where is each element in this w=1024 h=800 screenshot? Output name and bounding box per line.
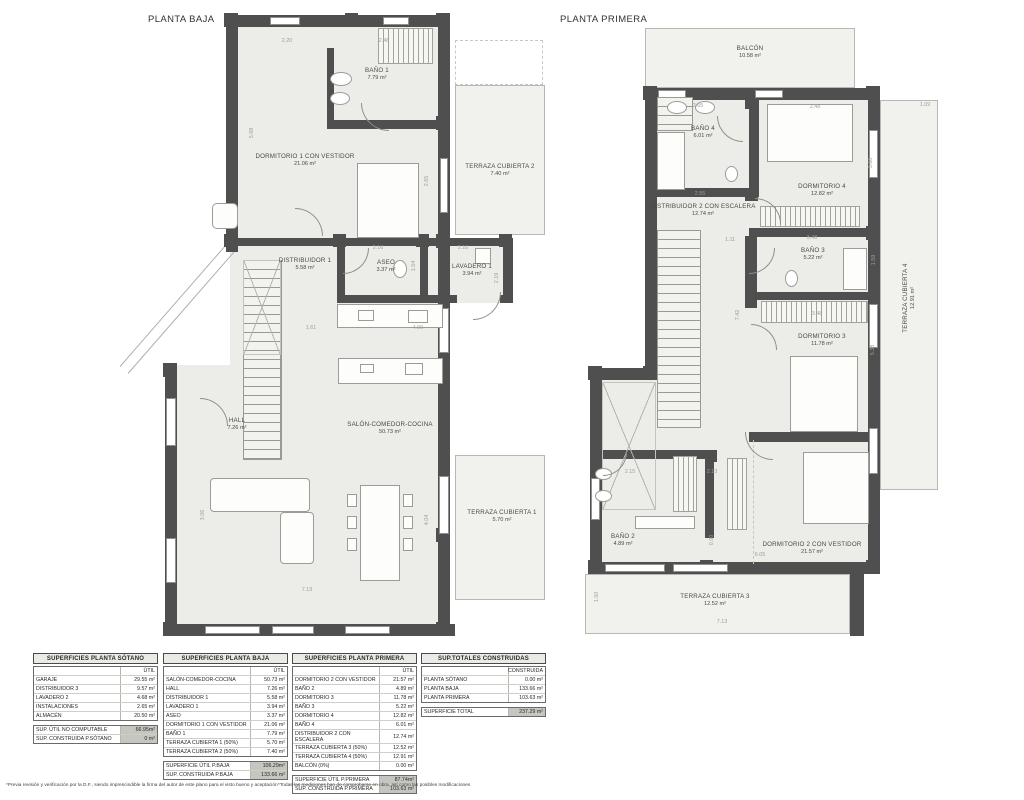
room-label-terraza2: TERRAZA CUBIERTA 2 7.40 m²: [465, 163, 534, 177]
row-label: BALCÓN (0%): [293, 762, 379, 770]
dimension-label: 1.59: [871, 255, 877, 266]
bed-icon: [767, 104, 853, 162]
room-area: 6.01 m²: [691, 133, 715, 139]
table-body: CONSTRUIDAPLANTA SÓTANO0.00 m²PLANTA BAJ…: [421, 666, 546, 703]
sink-icon: [330, 72, 352, 86]
room-area: 21.06 m²: [255, 161, 354, 167]
wall: [163, 363, 177, 377]
floor-plan-sheet: PLANTA BAJA PLANTA PRIMERA: [0, 0, 1024, 800]
total-value: 133.66 m²: [250, 771, 287, 779]
window: [605, 564, 665, 572]
room-name: LAVADERO 1: [452, 263, 492, 270]
table-row: BAÑO 46.01 m²: [293, 721, 416, 730]
footnote-left: *Previa revisión y verificación por la D…: [6, 783, 278, 788]
total-label: SUPERFICIE ÚTIL P.BAJA: [164, 762, 250, 770]
terrace-cubierta-2: [455, 85, 545, 235]
wardrobe-hatch: [378, 28, 433, 64]
dimension-label: 3.48: [812, 311, 823, 317]
room-label-dorm3: DORMITORIO 3 11.78 m²: [798, 333, 846, 347]
room-area: 5.58 m²: [279, 265, 331, 271]
window: [869, 428, 878, 474]
total-label: SUPERFICIE TOTAL: [422, 708, 508, 716]
room-label-distribuidor2: DISTRIBUIDOR 2 CON ESCALERA 12.74 m²: [650, 203, 755, 217]
room-name: BAÑO 2: [611, 533, 635, 540]
room-area: 10.58 m²: [737, 53, 764, 59]
dimension-label: 4.04: [424, 515, 430, 526]
row-label: DISTRIBUIDOR 3: [34, 685, 120, 693]
total-label: SUP. CONSTRUIDA P.BAJA: [164, 771, 250, 779]
table-total-row: SUP. ÚTIL NO COMPUTABLE66.95m²: [34, 726, 157, 735]
row-value: 12.74 m²: [379, 730, 416, 743]
toilet-icon: [785, 270, 798, 287]
window: [166, 538, 176, 583]
wall: [588, 560, 602, 574]
table-row: BAÑO 35.22 m²: [293, 703, 416, 712]
wall: [866, 226, 880, 240]
room-label-terraza1: TERRAZA CUBIERTA 1 5.70 m²: [467, 509, 536, 523]
wall: [226, 238, 513, 246]
total-label: SUP. ÚTIL NO COMPUTABLE: [34, 726, 120, 734]
wall: [224, 234, 237, 247]
table-superficies-planta-primera: SUPERFICIES PLANTA PRIMERAÚTILDORMITORIO…: [292, 653, 417, 794]
table-row: TERRAZA CUBIERTA 3 (50%)12.52 m²: [293, 744, 416, 753]
chair-icon: [347, 516, 357, 529]
room-name: SALÓN-COMEDOR-COCINA: [347, 421, 432, 428]
row-value: 5.22 m²: [379, 703, 416, 711]
cabinet-icon: [657, 132, 685, 190]
table-superficies-planta-sotano: SUPERFICIES PLANTA SÓTANOÚTILGARAJE29.55…: [33, 653, 158, 744]
table-total-row: SUP. CONSTRUIDA P.BAJA133.66 m²: [164, 771, 287, 779]
row-label: PLANTA SÓTANO: [422, 676, 508, 684]
wall: [850, 570, 864, 636]
dining-table-icon: [360, 485, 400, 581]
table-row: DORMITORIO 311.78 m²: [293, 694, 416, 703]
row-value: 103.63 m²: [508, 694, 545, 702]
wall: [643, 86, 657, 100]
dashed-line: [753, 440, 754, 564]
wall: [436, 116, 450, 130]
table-sup-totales-construidas: SUP.TOTALES CONSTRUIDASCONSTRUIDAPLANTA …: [421, 653, 546, 717]
room-name: DISTRIBUIDOR 2 CON ESCALERA: [650, 203, 755, 210]
wall: [749, 100, 759, 197]
window: [272, 626, 314, 634]
chair-icon: [347, 494, 357, 507]
table-body: ÚTILSALÓN-COMEDOR-COCINA50.73 m²HALL7.26…: [163, 666, 288, 757]
door-arc: [473, 292, 501, 320]
row-value: 5.58 m²: [250, 694, 287, 702]
row-label: DORMITORIO 1 CON VESTIDOR: [164, 721, 250, 729]
row-value: 29.55 m²: [120, 676, 157, 684]
room-area: 7.79 m²: [365, 75, 389, 81]
room-name: DORMITORIO 1 CON VESTIDOR: [255, 153, 354, 160]
hob-icon: [405, 363, 423, 375]
wall: [866, 86, 880, 100]
table-row: DORMITORIO 2 CON VESTIDOR21.57 m²: [293, 676, 416, 685]
table-row: SALÓN-COMEDOR-COCINA50.73 m²: [164, 676, 287, 685]
table-row: BAÑO 24.89 m²: [293, 685, 416, 694]
dimension-label: 7.13: [717, 619, 728, 625]
dimension-label: 2.65: [693, 103, 704, 109]
dimension-label: 5.38: [870, 345, 876, 356]
room-name: ASEO: [377, 259, 396, 266]
table-total-row: SUP. CONSTRUIDA P.SÓTANO0 m²: [34, 735, 157, 743]
row-label: DISTRIBUIDOR 1: [164, 694, 250, 702]
row-value: 133.66 m²: [508, 685, 545, 693]
room-area: 12.91 m²: [910, 263, 916, 332]
row-label: GARAJE: [34, 676, 120, 684]
row-value: 0.00 m²: [379, 762, 416, 770]
table-row: DORMITORIO 412.82 m²: [293, 712, 416, 721]
wall: [705, 450, 717, 462]
dimension-label: 3.68: [868, 158, 874, 169]
row-label: TERRAZA CUBIERTA 2 (50%): [164, 748, 250, 756]
double-height-void: [602, 382, 656, 510]
row-label: PLANTA PRIMERA: [422, 694, 508, 702]
room-area: 21.57 m²: [762, 549, 861, 555]
wall: [438, 15, 450, 122]
bed-icon: [803, 452, 869, 524]
wall: [499, 234, 512, 247]
dimension-label: 2.16: [458, 245, 469, 251]
wall: [436, 622, 450, 636]
row-value: 0.00 m²: [508, 676, 545, 684]
plan-planta-primera: BALCÓN 10.58 m² BAÑO 4 6.01 m² DORMITORI…: [555, 8, 955, 653]
boundary-line: [120, 240, 231, 367]
row-value: 7.79 m²: [250, 730, 287, 738]
table-superficies-planta-baja: SUPERFICIES PLANTA BAJAÚTILSALÓN-COMEDOR…: [163, 653, 288, 780]
table-title: SUPERFICIES PLANTA SÓTANO: [33, 653, 158, 664]
dimension-label: 1.50: [594, 592, 600, 603]
table-column-header: CONSTRUIDA: [508, 667, 545, 675]
room-label-dorm1: DORMITORIO 1 CON VESTIDOR 21.06 m²: [255, 153, 354, 167]
room-label-bano2: BAÑO 2 4.89 m²: [611, 533, 635, 547]
table-row: PLANTA SÓTANO0.00 m²: [422, 676, 545, 685]
table-header-row: ÚTIL: [164, 667, 287, 676]
row-label: PLANTA BAJA: [422, 685, 508, 693]
dimension-label: 2.20: [282, 38, 293, 44]
dimension-label: 7.13: [302, 587, 313, 593]
room-area: 5.70 m²: [467, 517, 536, 523]
chair-icon: [403, 516, 413, 529]
row-value: 2.65 m²: [120, 703, 157, 711]
row-label: INSTALACIONES: [34, 703, 120, 711]
wall: [588, 366, 602, 380]
row-label: TERRAZA CUBIERTA 4 (50%): [293, 753, 379, 761]
row-label: [164, 667, 250, 675]
row-label: ASEO: [164, 712, 250, 720]
row-value: 3.94 m²: [250, 703, 287, 711]
room-area: 5.22 m²: [801, 255, 825, 261]
table-row: DISTRIBUIDOR 15.58 m²: [164, 694, 287, 703]
table-total-row: SUPERFICIE ÚTIL P.BAJA106.29m²: [164, 762, 287, 771]
wall: [345, 13, 358, 26]
window: [869, 130, 878, 178]
dashed-line: [455, 40, 543, 85]
room-name: DORMITORIO 4: [798, 183, 846, 190]
window: [205, 626, 260, 634]
table-row: DORMITORIO 1 CON VESTIDOR21.06 m²: [164, 721, 287, 730]
table-header-row: CONSTRUIDA: [422, 667, 545, 676]
footnote-right: *Todas las mediciones han de comprobarse…: [278, 783, 470, 788]
dimension-label: 1.61: [306, 325, 317, 331]
row-value: 7.26 m²: [250, 685, 287, 693]
washer-icon: [475, 248, 491, 264]
dimension-label: 7.42: [735, 310, 741, 321]
room-name: BALCÓN: [737, 45, 764, 52]
dimension-label: 4.90: [413, 325, 424, 331]
dimension-label: 1.09: [920, 102, 931, 108]
table-row: DISTRIBUIDOR 2 CON ESCALERA12.74 m²: [293, 730, 416, 744]
room-area: 12.52 m²: [680, 601, 749, 607]
row-value: 21.57 m²: [379, 676, 416, 684]
room-label-terraza4: TERRAZA CUBIERTA 4 12.91 m²: [902, 263, 916, 332]
sink-icon: [330, 92, 350, 105]
dimension-label: 2.19: [494, 273, 500, 284]
table-row: PLANTA BAJA133.66 m²: [422, 685, 545, 694]
divider-line: [281, 260, 282, 460]
wall: [333, 234, 346, 247]
bed-icon: [357, 163, 419, 238]
room-area: 4.89 m²: [611, 541, 635, 547]
total-value: 106.29m²: [250, 762, 287, 770]
chair-icon: [403, 494, 413, 507]
dimension-label: 2.46: [379, 38, 390, 44]
dimension-label: 2.48: [810, 104, 821, 110]
row-label: DORMITORIO 2 CON VESTIDOR: [293, 676, 379, 684]
room-area: 7.26 m²: [228, 425, 247, 431]
window: [345, 626, 390, 634]
room-label-aseo: ASEO 3.37 m²: [377, 259, 396, 273]
row-value: 12.91 m²: [379, 753, 416, 761]
table-row: LAVADERO 13.94 m²: [164, 703, 287, 712]
sink-icon: [358, 310, 374, 321]
room-label-hall: HALL 7.26 m²: [228, 417, 247, 431]
window: [270, 17, 300, 25]
wall: [436, 13, 450, 27]
boundary-line: [128, 247, 239, 374]
table-row: ALMACÉN20.50 m²: [34, 712, 157, 720]
table-row: PLANTA PRIMERA103.63 m²: [422, 694, 545, 702]
wall: [224, 13, 238, 27]
bed-icon: [790, 356, 858, 432]
row-label: ALMACÉN: [34, 712, 120, 720]
room-name: HALL: [228, 417, 247, 424]
room-label-balcon: BALCÓN 10.58 m²: [737, 45, 764, 59]
table-totals: SUPERFICIE ÚTIL P.BAJA106.29m²SUP. CONST…: [163, 761, 288, 780]
row-label: [34, 667, 120, 675]
table-row: BALCÓN (0%)0.00 m²: [293, 762, 416, 770]
table-title: SUPERFICIES PLANTA BAJA: [163, 653, 288, 664]
row-label: BAÑO 2: [293, 685, 379, 693]
room-label-bano1: BAÑO 1 7.79 m²: [365, 67, 389, 81]
room-name: TERRAZA CUBIERTA 2: [465, 163, 534, 170]
room-name: DORMITORIO 2 CON VESTIDOR: [762, 541, 861, 548]
table-row: HALL7.26 m²: [164, 685, 287, 694]
table-header-row: ÚTIL: [293, 667, 416, 676]
room-area: 50.73 m²: [347, 429, 432, 435]
dimension-label: 2.55: [695, 191, 706, 197]
row-label: DORMITORIO 4: [293, 712, 379, 720]
table-row: TERRAZA CUBIERTA 1 (50%)5.70 m²: [164, 739, 287, 748]
wardrobe-hatch: [727, 458, 747, 530]
table-column-header: ÚTIL: [379, 667, 416, 675]
sink-icon: [667, 101, 687, 114]
room-label-terraza3: TERRAZA CUBIERTA 3 12.52 m²: [680, 593, 749, 607]
wall: [226, 15, 445, 27]
dimension-label: 1.11: [725, 237, 735, 243]
dimension-label: 2.13: [707, 469, 718, 475]
row-value: 4.89 m²: [379, 685, 416, 693]
room-area: 3.94 m²: [452, 271, 492, 277]
table-column-header: ÚTIL: [250, 667, 287, 675]
toilet-icon: [725, 166, 738, 182]
sink-icon: [595, 490, 612, 502]
room-label-dorm2: DORMITORIO 2 CON VESTIDOR 21.57 m²: [762, 541, 861, 555]
window: [869, 304, 878, 348]
sink-icon: [360, 364, 374, 373]
row-label: DISTRIBUIDOR 2 CON ESCALERA: [293, 730, 379, 743]
dimension-label: 3.06: [200, 510, 206, 521]
dimension-label: 2.65: [424, 176, 430, 187]
table-column-header: ÚTIL: [120, 667, 157, 675]
row-label: [422, 667, 508, 675]
stove-icon: [408, 310, 428, 323]
dimension-label: 1.54: [411, 261, 417, 272]
room-area: 12.82 m²: [798, 191, 846, 197]
staircase: [657, 230, 701, 428]
table-row: ASEO3.37 m²: [164, 712, 287, 721]
table-totals: SUP. ÚTIL NO COMPUTABLE66.95m²SUP. CONST…: [33, 725, 158, 744]
room-label-distribuidor1: DISTRIBUIDOR 1 5.58 m²: [279, 257, 331, 271]
table-totals: SUPERFICIE TOTAL237.29 m²: [421, 707, 546, 717]
total-value: 237.29 m²: [508, 708, 545, 716]
wall: [436, 234, 450, 248]
dimension-label: 0.90: [709, 535, 715, 546]
room-label-bano4: BAÑO 4 6.01 m²: [691, 125, 715, 139]
row-label: TERRAZA CUBIERTA 1 (50%): [164, 739, 250, 747]
table-title: SUP.TOTALES CONSTRUIDAS: [421, 653, 546, 664]
sofa-icon: [280, 512, 314, 564]
window: [383, 17, 409, 25]
room-label-lavadero1: LAVADERO 1 3.94 m²: [452, 263, 492, 277]
total-value: 66.95m²: [120, 726, 157, 734]
table-row: TERRAZA CUBIERTA 4 (50%)12.91 m²: [293, 753, 416, 762]
kitchen-island: [338, 358, 443, 384]
wall: [705, 453, 714, 538]
bathtub-icon: [843, 248, 867, 290]
dimension-label: 5.68: [249, 128, 255, 139]
row-value: 20.50 m²: [120, 712, 157, 720]
dimension-label: 2.15: [625, 469, 636, 475]
row-label: BAÑO 1: [164, 730, 250, 738]
row-value: 5.70 m²: [250, 739, 287, 747]
window: [755, 90, 783, 98]
row-value: 3.37 m²: [250, 712, 287, 720]
row-label: TERRAZA CUBIERTA 3 (50%): [293, 744, 379, 752]
room-label-bano3: BAÑO 3 5.22 m²: [801, 247, 825, 261]
room-name: BAÑO 4: [691, 125, 715, 132]
row-label: SALÓN-COMEDOR-COCINA: [164, 676, 250, 684]
sofa-icon: [210, 478, 310, 512]
wall: [163, 622, 177, 636]
room-label-salon: SALÓN-COMEDOR-COCINA 50.73 m²: [347, 421, 432, 435]
table-row: TERRAZA CUBIERTA 2 (50%)7.40 m²: [164, 748, 287, 756]
window: [440, 158, 448, 213]
room-name: TERRAZA CUBIERTA 4: [902, 263, 909, 332]
row-label: HALL: [164, 685, 250, 693]
row-value: 9.57 m²: [120, 685, 157, 693]
row-value: 12.52 m²: [379, 744, 416, 752]
dimension-label: 2.16: [373, 245, 384, 251]
room-area: 7.40 m²: [465, 171, 534, 177]
row-label: DORMITORIO 3: [293, 694, 379, 702]
window: [166, 398, 176, 446]
row-value: 21.06 m²: [250, 721, 287, 729]
plan-planta-baja: BAÑO 1 7.79 m² DORMITORIO 1 CON VESTIDOR…: [120, 8, 555, 653]
total-label: SUP. CONSTRUIDA P.SÓTANO: [34, 735, 120, 743]
wall: [866, 560, 880, 574]
table-row: BAÑO 17.79 m²: [164, 730, 287, 739]
row-label: [293, 667, 379, 675]
row-value: 7.40 m²: [250, 748, 287, 756]
wall: [645, 88, 657, 380]
room-name: TERRAZA CUBIERTA 1: [467, 509, 536, 516]
room-name: TERRAZA CUBIERTA 3: [680, 593, 749, 600]
table-row: DISTRIBUIDOR 39.57 m²: [34, 685, 157, 694]
room-area: 3.37 m²: [377, 267, 396, 273]
table-body: ÚTILDORMITORIO 2 CON VESTIDOR21.57 m²BAÑ…: [292, 666, 417, 771]
wall: [643, 366, 657, 380]
room-name: BAÑO 3: [801, 247, 825, 254]
dimension-label: 6.05: [755, 552, 766, 558]
table-body: ÚTILGARAJE29.55 m²DISTRIBUIDOR 39.57 m²L…: [33, 666, 158, 721]
table-total-row: SUPERFICIE TOTAL237.29 m²: [422, 708, 545, 716]
table-row: LAVADERO 24.68 m²: [34, 694, 157, 703]
room-name: DORMITORIO 3: [798, 333, 846, 340]
table-row: GARAJE29.55 m²: [34, 676, 157, 685]
room-name: BAÑO 1: [365, 67, 389, 74]
room-area: 12.74 m²: [650, 211, 755, 217]
table-row: INSTALACIONES2.65 m²: [34, 703, 157, 712]
row-value: 4.68 m²: [120, 694, 157, 702]
wall: [503, 238, 513, 303]
row-label: LAVADERO 1: [164, 703, 250, 711]
total-value: 0 m²: [120, 735, 157, 743]
row-label: BAÑO 3: [293, 703, 379, 711]
shower-hatch: [673, 456, 697, 512]
vanity-icon: [635, 516, 695, 529]
row-label: LAVADERO 2: [34, 694, 120, 702]
row-value: 6.01 m²: [379, 721, 416, 729]
chair-icon: [403, 538, 413, 551]
window: [439, 476, 449, 534]
row-label: BAÑO 4: [293, 721, 379, 729]
row-value: 11.78 m²: [379, 694, 416, 702]
row-value: 12.82 m²: [379, 712, 416, 720]
wall: [749, 292, 868, 300]
terrace-cubierta-1: [455, 455, 545, 600]
room-label-dorm4: DORMITORIO 4 12.82 m²: [798, 183, 846, 197]
window: [673, 564, 728, 572]
room-area: 11.78 m²: [798, 341, 846, 347]
room-name: DISTRIBUIDOR 1: [279, 257, 331, 264]
table-header-row: ÚTIL: [34, 667, 157, 676]
table-title: SUPERFICIES PLANTA PRIMERA: [292, 653, 417, 664]
armchair-icon: [212, 203, 238, 229]
void-cross: [243, 260, 281, 355]
chair-icon: [347, 538, 357, 551]
row-value: 50.73 m²: [250, 676, 287, 684]
